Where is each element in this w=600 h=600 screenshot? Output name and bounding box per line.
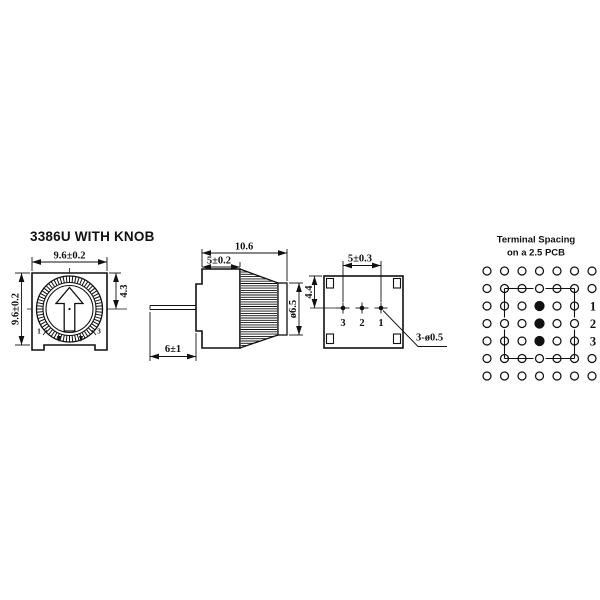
terminal-label-2: 2 [359, 318, 364, 329]
pcb-hole [483, 372, 491, 380]
front-view: 1 3 9.6±0.2 9.6±0.2 4.3 [11, 251, 131, 351]
pcb-hole-filled [535, 302, 544, 311]
front-terminal-3-label: 3 [97, 327, 101, 336]
hole-callout-text: 3-ø0.5 [416, 333, 443, 344]
pcb-hole [553, 302, 561, 310]
pcb-row-label: 1 [590, 300, 596, 314]
pcb-hole [518, 337, 526, 345]
side-dim-body: 5±0.2 [202, 256, 240, 268]
knob-center-dot [68, 308, 70, 310]
side-knob-face [278, 283, 287, 335]
pcb-hole [553, 337, 561, 345]
side-dim-overall-text: 10.6 [235, 242, 253, 253]
side-view: 10.6 5±0.2 ø6.5 6±1 [150, 242, 303, 362]
side-dim-knob-diameter: ø6.5 [288, 283, 303, 335]
terminal-label-3: 3 [340, 318, 345, 329]
pcb-hole [483, 355, 491, 363]
technical-drawing: 3386U WITH KNOB 1 3 9.6±0.2 [0, 0, 600, 600]
pcb-hole [536, 372, 544, 380]
pcb-hole [553, 320, 561, 328]
pcb-hole [501, 320, 509, 328]
pcb-hole [553, 372, 561, 380]
pcb-hole [483, 337, 491, 345]
drawing-page: 3386U WITH KNOB 1 3 9.6±0.2 [0, 0, 600, 600]
pcb-hole [536, 267, 544, 275]
drawing-title: 3386U WITH KNOB [30, 229, 155, 244]
bottom-body [324, 276, 403, 348]
pcb-grid-holes: 123 [483, 267, 596, 380]
pcb-hole [483, 267, 491, 275]
bottom-dim-terminal-span-text: 5±0.3 [348, 254, 372, 265]
front-dim-width-text: 9.6±0.2 [53, 251, 85, 262]
pcb-hole [588, 267, 596, 275]
front-dim-width: 9.6±0.2 [32, 251, 107, 272]
pcb-title-line1: Terminal Spacing [497, 235, 576, 246]
pcb-title-line2: on a 2.5 PCB [507, 248, 565, 259]
pcb-hole [536, 285, 544, 293]
pcb-terminal-spacing: Terminal Spacing on a 2.5 PCB 123 [483, 235, 596, 381]
pcb-hole [571, 372, 579, 380]
pcb-hole [483, 320, 491, 328]
front-dim-height-text: 9.6±0.2 [11, 293, 22, 325]
pcb-hole-filled [535, 337, 544, 346]
side-dim-knob-diameter-text: ø6.5 [288, 300, 299, 318]
pcb-hole [501, 372, 509, 380]
pcb-hole [518, 372, 526, 380]
side-pin [150, 306, 196, 310]
pcb-hole [571, 320, 579, 328]
pcb-hole-filled [535, 319, 544, 328]
pcb-hole [588, 372, 596, 380]
pcb-hole [483, 285, 491, 293]
pcb-hole [588, 355, 596, 363]
side-dim-pin-length-text: 6±1 [165, 344, 181, 355]
pcb-hole [518, 320, 526, 328]
pcb-row-label: 3 [590, 335, 596, 349]
pcb-hole [518, 267, 526, 275]
side-dim-pin-length: 6±1 [150, 312, 196, 361]
pcb-hole [501, 267, 509, 275]
front-dim-offset-text: 4.3 [119, 284, 130, 297]
pcb-hole [518, 302, 526, 310]
side-dim-body-text: 5±0.2 [207, 256, 231, 267]
bottom-view: 3 2 1 5±0.3 4.4 3-ø0.5 [304, 254, 447, 349]
terminal-label-1: 1 [378, 318, 383, 329]
pcb-hole [483, 302, 491, 310]
bottom-dim-terminal-offset-text: 4.4 [304, 285, 315, 299]
front-terminal-1-label: 1 [37, 327, 41, 336]
side-body [196, 269, 240, 348]
pcb-row-label: 2 [590, 317, 596, 331]
pcb-hole [536, 355, 544, 363]
pcb-hole [588, 285, 596, 293]
front-dim-offset: 4.3 [109, 273, 130, 309]
pcb-hole [571, 267, 579, 275]
pcb-hole [553, 267, 561, 275]
bottom-dim-terminal-offset: 4.4 [304, 276, 322, 308]
